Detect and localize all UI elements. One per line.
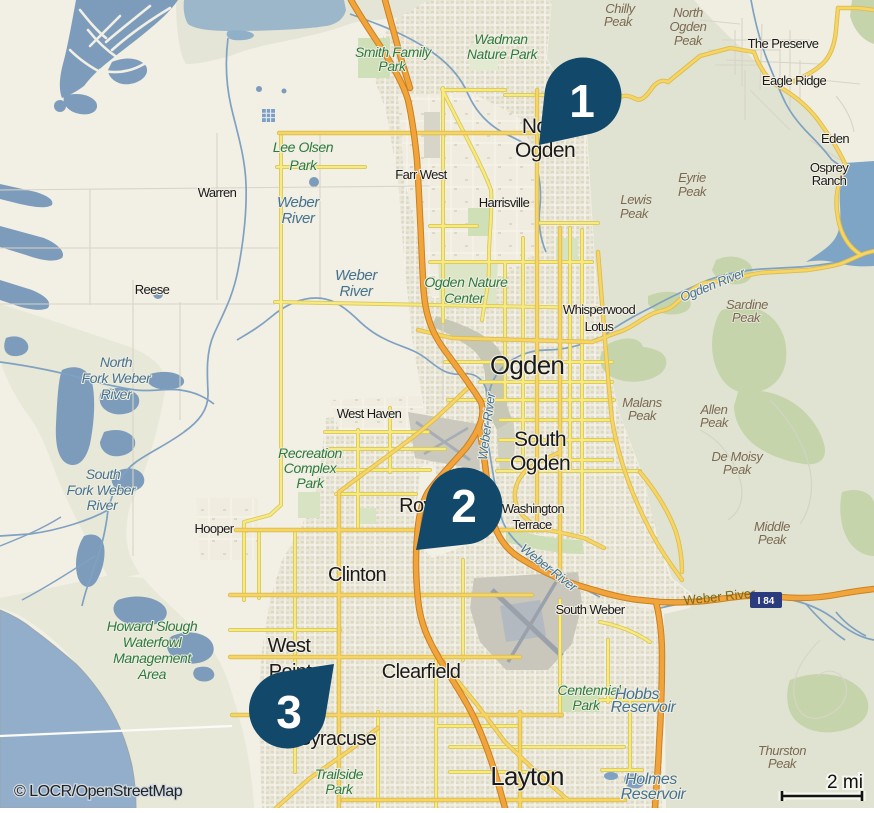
svg-text:2: 2 bbox=[451, 480, 477, 532]
svg-text:1: 1 bbox=[569, 75, 595, 127]
svg-text:Park: Park bbox=[325, 781, 354, 797]
svg-text:Harrisville: Harrisville bbox=[479, 195, 530, 210]
svg-text:Fork Weber: Fork Weber bbox=[82, 370, 153, 386]
svg-text:Nature Park: Nature Park bbox=[467, 46, 539, 62]
svg-text:North: North bbox=[100, 354, 133, 370]
svg-text:Peak: Peak bbox=[768, 756, 798, 771]
svg-text:Peak: Peak bbox=[628, 408, 658, 423]
svg-text:Peak: Peak bbox=[732, 310, 762, 325]
svg-text:Layton: Layton bbox=[490, 761, 563, 791]
svg-text:Warren: Warren bbox=[198, 185, 237, 200]
svg-text:Weber: Weber bbox=[335, 267, 378, 284]
svg-text:Peak: Peak bbox=[620, 206, 650, 221]
svg-text:I 84: I 84 bbox=[758, 596, 775, 607]
svg-text:Peak: Peak bbox=[674, 33, 704, 48]
svg-text:Farr West: Farr West bbox=[395, 167, 447, 182]
svg-text:North: North bbox=[673, 5, 703, 20]
svg-text:Weber: Weber bbox=[277, 194, 320, 211]
svg-text:Complex: Complex bbox=[284, 460, 338, 476]
svg-text:2 mi: 2 mi bbox=[827, 772, 863, 793]
svg-text:Park: Park bbox=[378, 58, 407, 74]
svg-text:Ogden Nature: Ogden Nature bbox=[424, 274, 508, 290]
svg-text:River: River bbox=[281, 210, 315, 227]
svg-text:Peak: Peak bbox=[700, 415, 730, 430]
svg-text:Lotus: Lotus bbox=[585, 319, 615, 334]
svg-text:© LOCR/OpenStreetMap: © LOCR/OpenStreetMap bbox=[14, 783, 183, 800]
svg-text:Management: Management bbox=[113, 650, 192, 666]
svg-text:Ogden: Ogden bbox=[490, 350, 564, 380]
svg-text:The Preserve: The Preserve bbox=[748, 36, 819, 51]
svg-text:Eagle Ridge: Eagle Ridge bbox=[762, 73, 827, 88]
svg-text:West Haven: West Haven bbox=[337, 406, 402, 421]
svg-text:Park: Park bbox=[296, 475, 325, 491]
svg-text:Park: Park bbox=[289, 157, 318, 173]
svg-text:Whisperwood: Whisperwood bbox=[563, 302, 636, 317]
svg-text:Peak: Peak bbox=[604, 14, 634, 29]
svg-text:Reese: Reese bbox=[135, 282, 170, 297]
svg-text:South: South bbox=[514, 428, 566, 451]
svg-text:Washington: Washington bbox=[502, 501, 565, 516]
svg-text:Reservoir: Reservoir bbox=[621, 786, 687, 803]
svg-text:South Weber: South Weber bbox=[555, 602, 625, 617]
svg-text:Park: Park bbox=[572, 697, 601, 713]
svg-text:3: 3 bbox=[276, 686, 302, 738]
svg-text:Eden: Eden bbox=[821, 131, 849, 146]
svg-text:Reservoir: Reservoir bbox=[611, 699, 677, 716]
svg-text:Waterfowl: Waterfowl bbox=[123, 634, 183, 650]
svg-text:Howard Slough: Howard Slough bbox=[107, 618, 198, 634]
svg-text:Centennial: Centennial bbox=[558, 682, 622, 698]
svg-text:Trailside: Trailside bbox=[315, 766, 364, 782]
svg-text:Clearfield: Clearfield bbox=[382, 661, 460, 683]
svg-text:Eyrie: Eyrie bbox=[678, 170, 706, 185]
svg-text:Terrace: Terrace bbox=[512, 517, 552, 532]
svg-text:Center: Center bbox=[444, 290, 485, 306]
svg-text:Peak: Peak bbox=[678, 184, 708, 199]
svg-text:Peak: Peak bbox=[723, 462, 753, 477]
svg-text:Area: Area bbox=[137, 666, 167, 682]
svg-text:Recreation: Recreation bbox=[278, 445, 342, 461]
svg-text:Ranch: Ranch bbox=[812, 173, 847, 188]
svg-text:River: River bbox=[87, 497, 119, 513]
svg-text:South: South bbox=[86, 466, 121, 482]
svg-text:Ogden: Ogden bbox=[510, 452, 570, 475]
svg-text:Lewis: Lewis bbox=[620, 192, 652, 207]
svg-text:Hooper: Hooper bbox=[194, 521, 234, 536]
svg-text:River: River bbox=[339, 283, 373, 300]
svg-text:Lee Olsen: Lee Olsen bbox=[273, 139, 334, 155]
svg-text:Wadman: Wadman bbox=[474, 31, 528, 47]
svg-text:Peak: Peak bbox=[758, 532, 788, 547]
svg-text:Clinton: Clinton bbox=[328, 564, 386, 586]
svg-text:Ogden: Ogden bbox=[669, 19, 706, 34]
svg-text:Fork Weber: Fork Weber bbox=[67, 482, 138, 498]
svg-text:River: River bbox=[101, 386, 133, 402]
svg-text:West: West bbox=[268, 635, 312, 657]
